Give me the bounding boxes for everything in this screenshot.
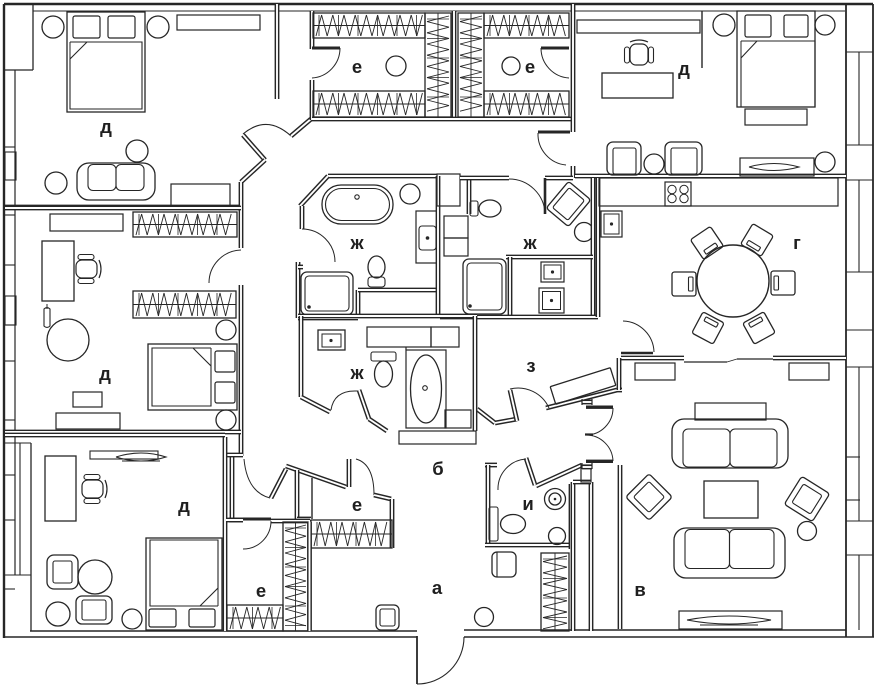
svg-text:е: е: [352, 494, 362, 515]
svg-text:з: з: [526, 355, 535, 376]
svg-text:е: е: [525, 56, 535, 77]
svg-text:г: г: [793, 232, 801, 253]
svg-text:ж: ж: [349, 232, 364, 253]
svg-text:д: д: [100, 116, 112, 137]
svg-text:ж: ж: [522, 232, 537, 253]
svg-text:е: е: [256, 580, 266, 601]
svg-text:д: д: [99, 363, 111, 384]
svg-text:в: в: [634, 579, 645, 600]
svg-text:е: е: [352, 56, 362, 77]
svg-text:и: и: [522, 493, 533, 514]
svg-text:а: а: [432, 577, 443, 598]
svg-text:б: б: [432, 458, 443, 479]
svg-text:д: д: [178, 495, 190, 516]
svg-text:ж: ж: [349, 362, 364, 383]
svg-text:д: д: [678, 58, 690, 79]
